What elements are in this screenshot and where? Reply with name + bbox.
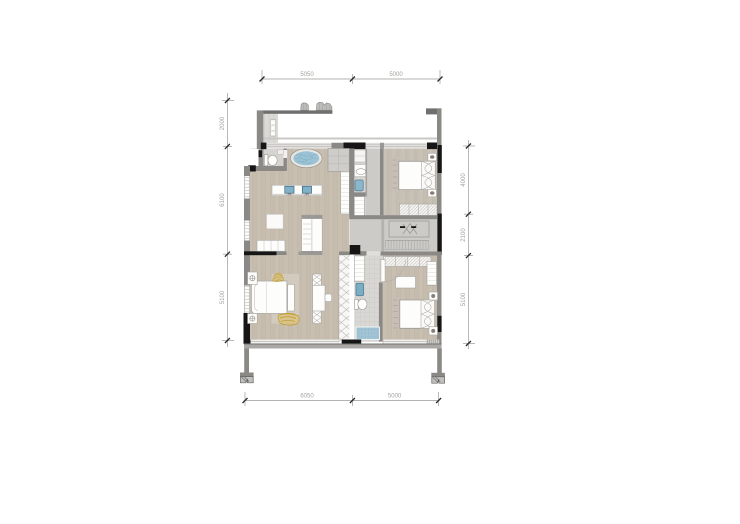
svg-text:5100: 5100 <box>220 290 226 304</box>
svg-text:5100: 5100 <box>461 292 467 306</box>
svg-text:2100: 2100 <box>461 228 467 242</box>
svg-text:5000: 5000 <box>389 72 403 78</box>
svg-text:5000: 5000 <box>388 394 402 400</box>
svg-text:2000: 2000 <box>220 116 226 130</box>
svg-text:6100: 6100 <box>220 193 226 207</box>
svg-text:5050: 5050 <box>300 72 314 78</box>
svg-text:4000: 4000 <box>461 173 467 187</box>
svg-text:6050: 6050 <box>300 394 314 400</box>
